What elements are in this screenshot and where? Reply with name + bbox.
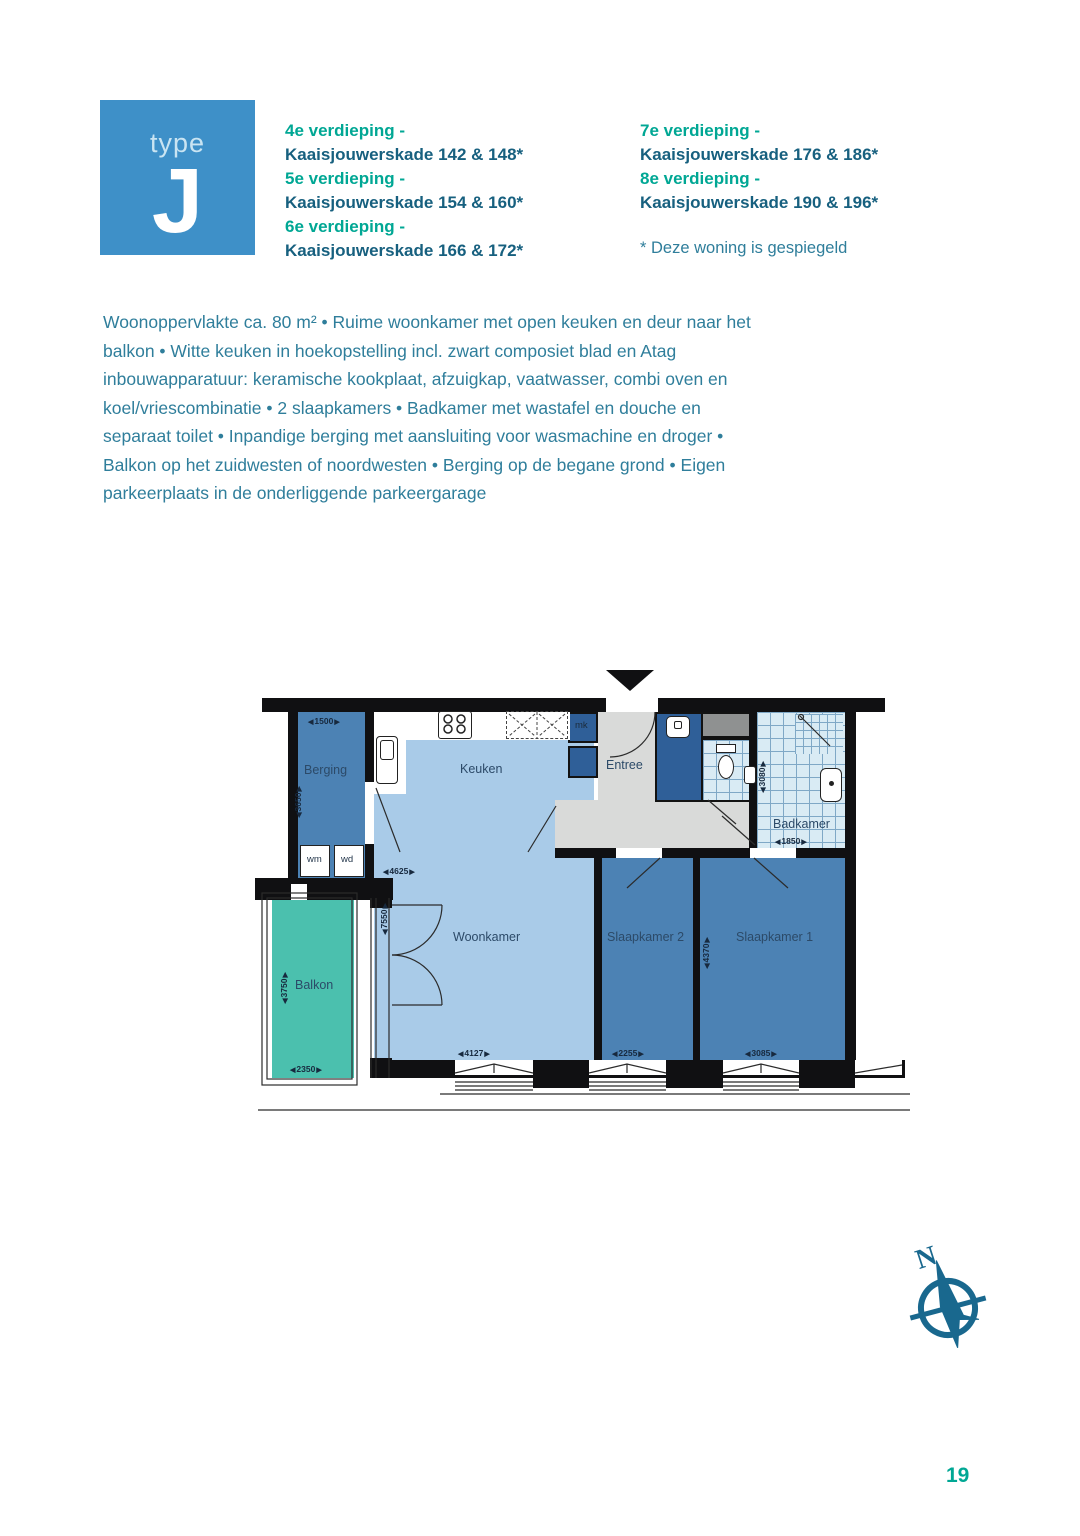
label-slaapkamer1: Slaapkamer 1 (736, 930, 813, 944)
dim-slaapkamer1-width: 3085 (745, 1048, 777, 1058)
dim-woonkamer-width: 4127 (458, 1048, 490, 1058)
label-berging: Berging (304, 763, 347, 777)
dim-woonkamer-depth: 7550 (376, 887, 392, 951)
plan-lines-overlay (250, 665, 930, 1135)
brochure-page: type J 4e verdieping - Kaaisjouwerskade … (0, 0, 1080, 1536)
address-label: Kaaisjouwerskade 176 & 186* (640, 143, 1000, 167)
floor-label: 5e verdieping - (285, 167, 645, 191)
compass-north-label: N (912, 1243, 941, 1276)
type-badge: type J (100, 100, 255, 255)
floor-list-right: 7e verdieping - Kaaisjouwerskade 176 & 1… (640, 119, 1000, 215)
floor-label: 8e verdieping - (640, 167, 1000, 191)
address-label: Kaaisjouwerskade 190 & 196* (640, 191, 1000, 215)
entrance-arrow-icon (606, 670, 654, 691)
dim-balkon-width: 2350 (290, 1064, 322, 1074)
floor-plan: Berging Keuken Entree Badkamer Woonkamer… (250, 665, 930, 1135)
dim-slaapkamer1-depth: 4370 (698, 923, 714, 983)
page-number: 19 (946, 1464, 969, 1488)
type-badge-letter: J (152, 161, 203, 241)
label-mk: mk (575, 720, 588, 731)
label-entree: Entree (606, 758, 643, 772)
dim-slaapkamer2-width: 2255 (612, 1048, 644, 1058)
address-label: Kaaisjouwerskade 142 & 148* (285, 143, 645, 167)
label-wm: wm (307, 854, 322, 865)
dim-berging-depth: 3650 (290, 770, 306, 834)
dim-keuken-width: 4625 (383, 866, 415, 876)
label-wd: wd (341, 854, 353, 865)
dim-badkamer-depth: 3080 (754, 747, 770, 807)
compass-rose: N (903, 1243, 993, 1358)
floor-label: 7e verdieping - (640, 119, 1000, 143)
floor-label: 6e verdieping - (285, 215, 645, 239)
apartment-description: Woonoppervlakte ca. 80 m² • Ruime woonka… (103, 308, 768, 508)
label-badkamer: Badkamer (773, 817, 830, 831)
dim-badkamer-width: 1850 (775, 836, 807, 846)
address-label: Kaaisjouwerskade 154 & 160* (285, 191, 645, 215)
label-balkon: Balkon (295, 978, 333, 992)
label-keuken: Keuken (460, 762, 502, 776)
dim-berging-width: 1500 (308, 716, 340, 726)
floor-label: 4e verdieping - (285, 119, 645, 143)
floor-list-left: 4e verdieping - Kaaisjouwerskade 142 & 1… (285, 119, 645, 263)
mirrored-note: * Deze woning is gespiegeld (640, 239, 847, 258)
address-label: Kaaisjouwerskade 166 & 172* (285, 239, 645, 263)
label-slaapkamer2: Slaapkamer 2 (607, 930, 684, 944)
dim-balkon-depth: 3750 (276, 958, 292, 1018)
label-woonkamer: Woonkamer (453, 930, 520, 944)
